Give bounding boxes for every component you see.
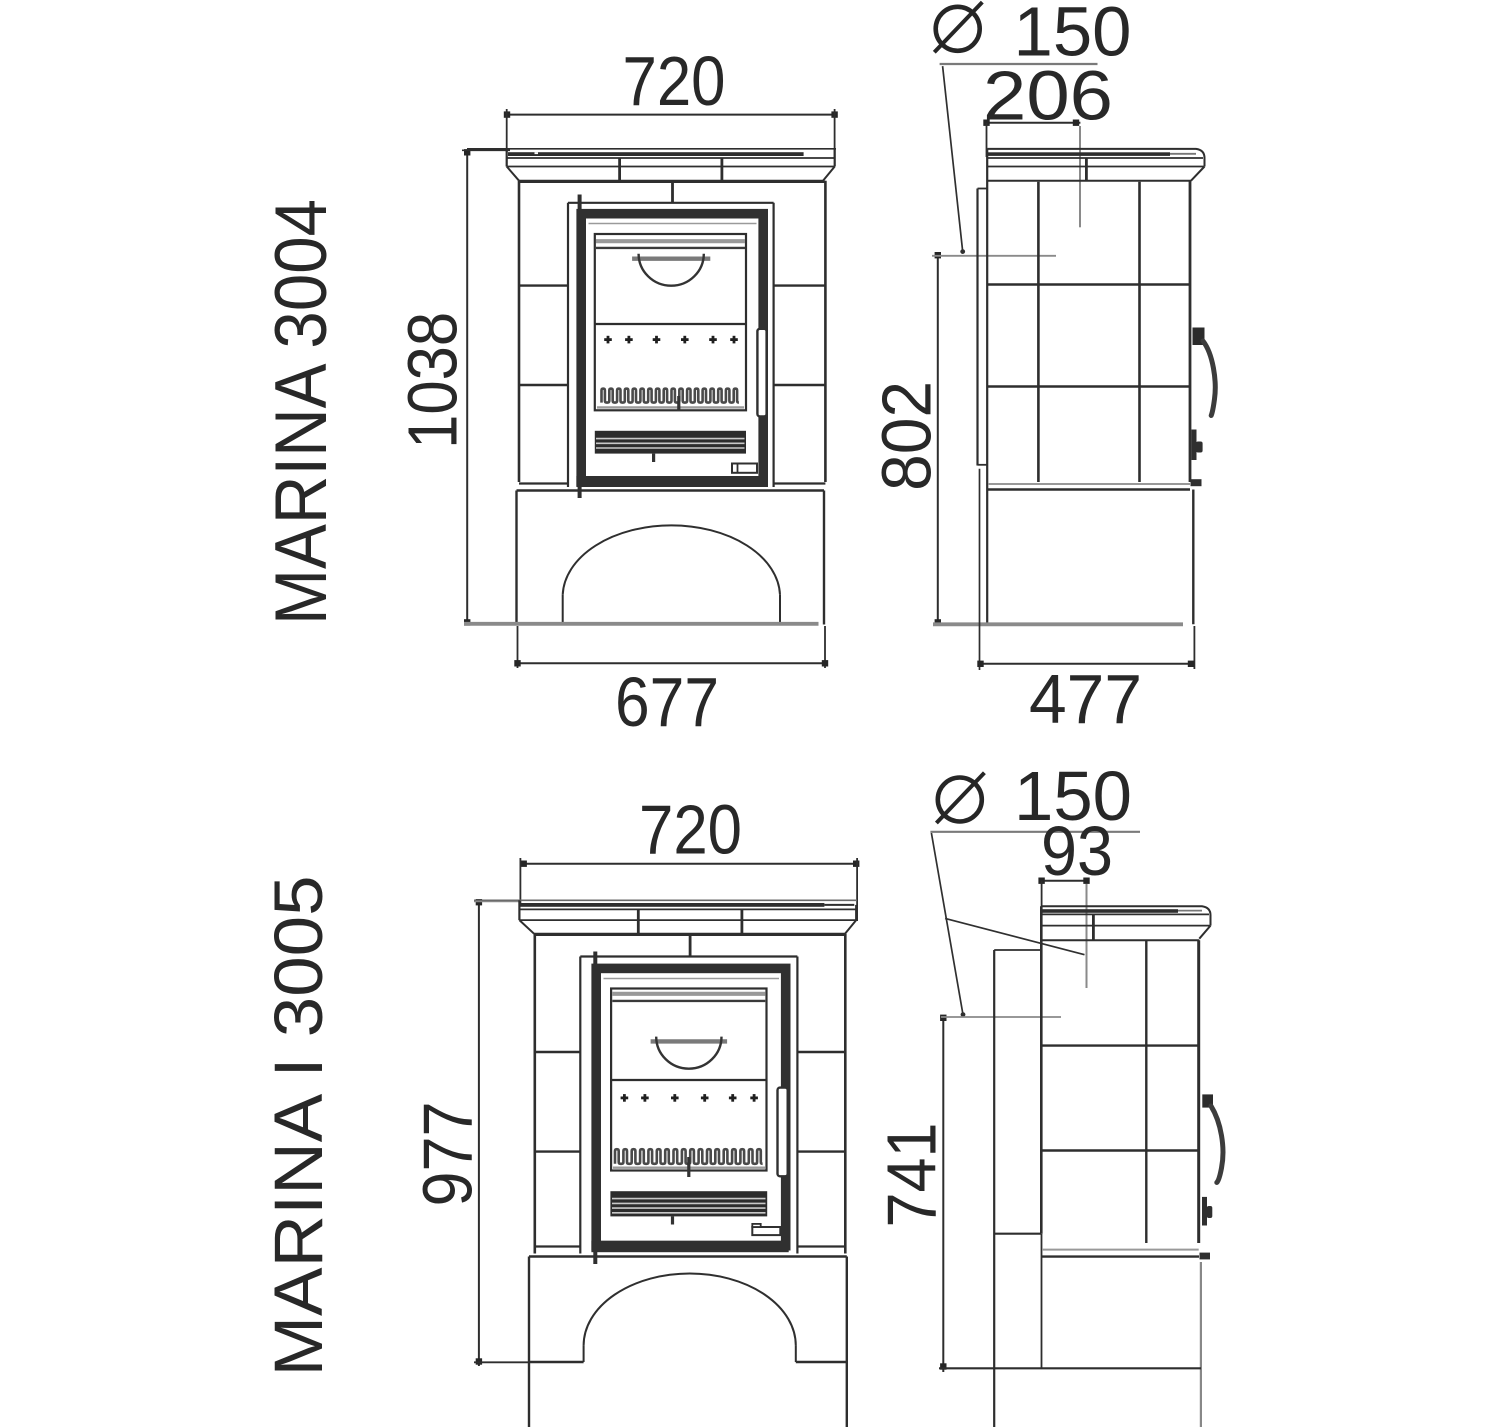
svg-text:477: 477: [1029, 660, 1142, 738]
svg-text:802: 802: [868, 381, 946, 491]
svg-text:720: 720: [623, 42, 726, 120]
svg-text:720: 720: [639, 791, 742, 869]
svg-text:1038: 1038: [393, 312, 471, 449]
svg-text:MARINA 3004: MARINA 3004: [261, 199, 342, 625]
svg-text:93: 93: [1041, 812, 1113, 890]
svg-text:MARINA I 3005: MARINA I 3005: [260, 876, 337, 1377]
svg-text:977: 977: [409, 1102, 487, 1207]
svg-text:677: 677: [615, 663, 719, 741]
svg-text:741: 741: [873, 1123, 951, 1228]
